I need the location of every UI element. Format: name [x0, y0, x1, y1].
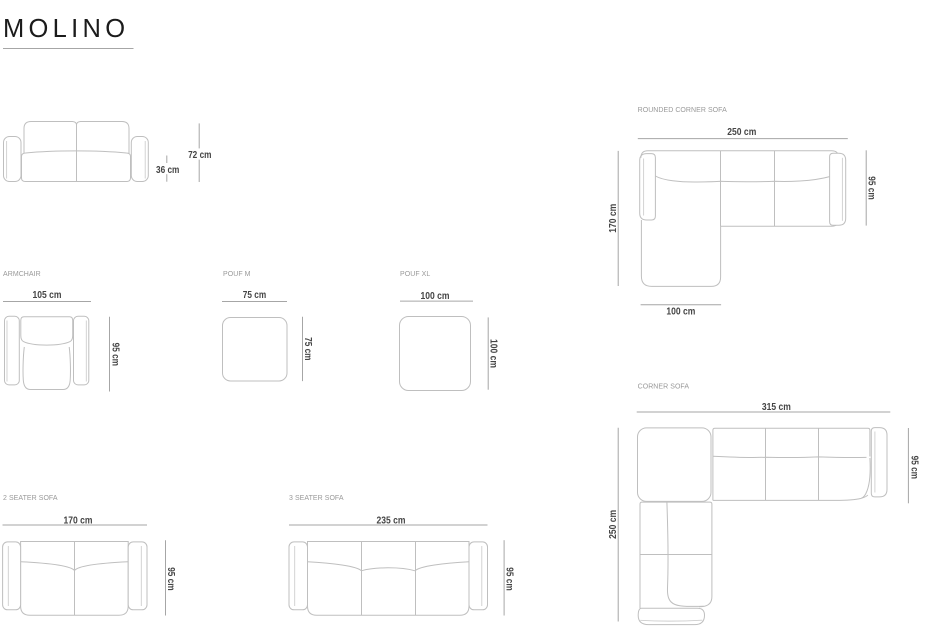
svg-text:170 cm: 170 cm [608, 204, 619, 233]
svg-text:75 cm: 75 cm [243, 290, 267, 301]
svg-text:ARMCHAIR: ARMCHAIR [3, 271, 41, 278]
svg-text:95 cm: 95 cm [908, 456, 919, 480]
svg-text:95 cm: 95 cm [866, 176, 877, 200]
svg-text:95 cm: 95 cm [503, 567, 514, 591]
svg-text:36 cm: 36 cm [156, 165, 180, 176]
svg-text:3 SEATER SOFA: 3 SEATER SOFA [289, 495, 344, 502]
svg-text:MOLINO: MOLINO [3, 15, 129, 43]
svg-text:315 cm: 315 cm [762, 402, 791, 413]
svg-text:75 cm: 75 cm [302, 337, 313, 361]
svg-text:POUF M: POUF M [223, 271, 251, 278]
svg-text:105 cm: 105 cm [33, 290, 62, 301]
svg-text:CORNER SOFA: CORNER SOFA [638, 384, 690, 391]
svg-text:100 cm: 100 cm [666, 306, 695, 317]
svg-text:250 cm: 250 cm [727, 127, 756, 138]
svg-text:ROUNDED CORNER SOFA: ROUNDED CORNER SOFA [638, 107, 728, 114]
svg-text:100 cm: 100 cm [421, 291, 450, 302]
svg-text:2 SEATER SOFA: 2 SEATER SOFA [3, 495, 58, 502]
svg-text:72 cm: 72 cm [188, 150, 212, 161]
svg-text:95 cm: 95 cm [109, 343, 120, 367]
svg-text:POUF XL: POUF XL [400, 271, 430, 278]
svg-text:235 cm: 235 cm [377, 515, 406, 526]
svg-text:95 cm: 95 cm [165, 567, 176, 591]
svg-text:170 cm: 170 cm [64, 515, 93, 526]
svg-text:100 cm: 100 cm [488, 339, 499, 368]
svg-text:250 cm: 250 cm [608, 510, 619, 539]
